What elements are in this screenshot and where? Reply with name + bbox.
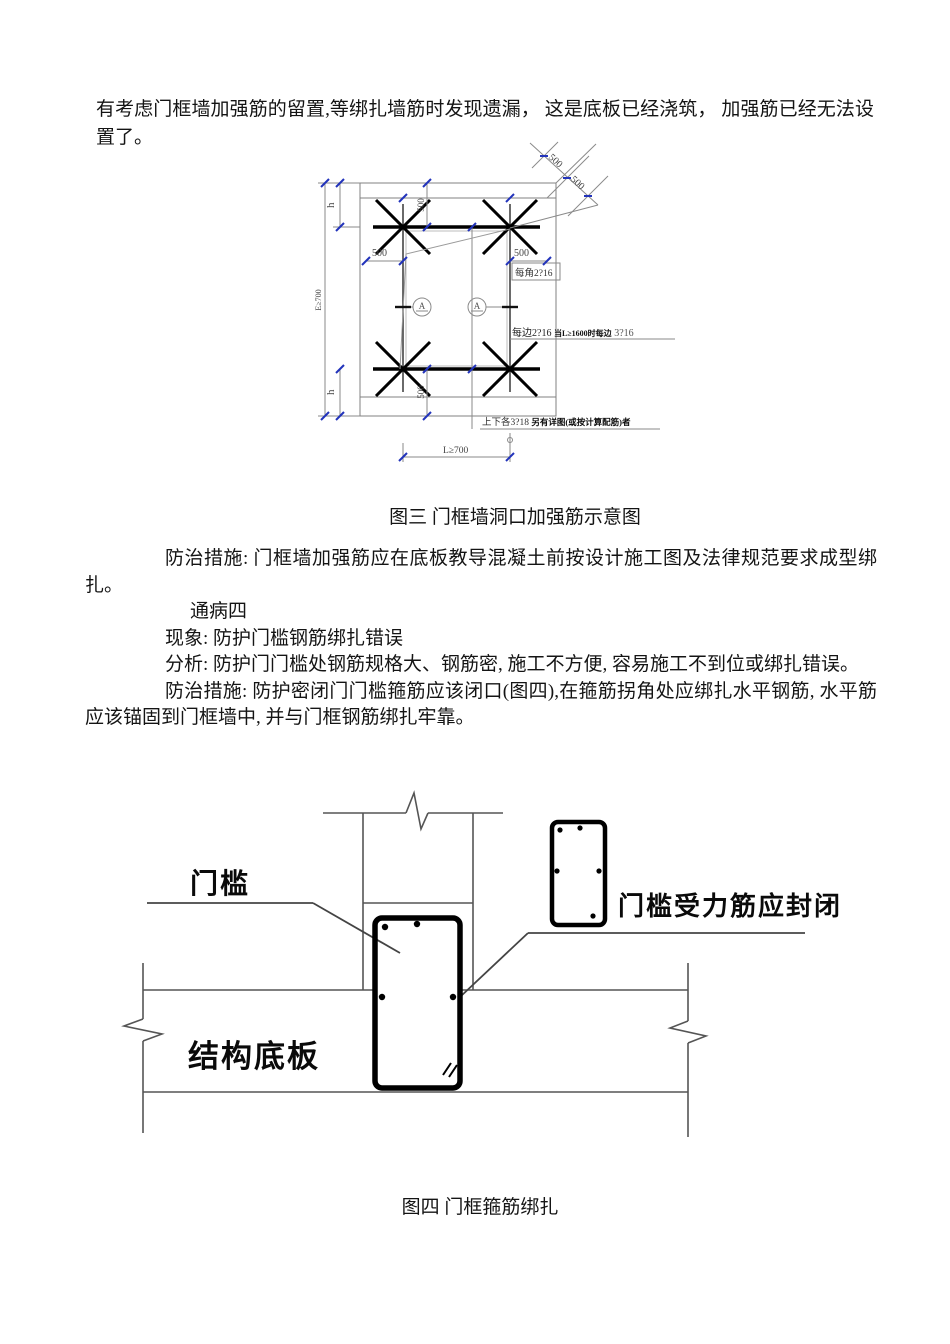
figure3-diagram: h h E≥700 500 500 500 500 500 500 每角2?16…: [300, 140, 740, 485]
dim-500-diag2-label: 500: [568, 174, 587, 192]
sill-label: 门槛: [190, 868, 250, 900]
side-rebar-label-b: 当L≥1600时每边: [554, 328, 613, 338]
slab-label: 结构底板: [188, 1039, 320, 1074]
figure4-svg: 门槛 门槛受力筋应封闭 结构底板: [110, 775, 900, 1150]
dim-h-top-label: h: [325, 202, 337, 208]
dim-500-top-label: 500: [416, 198, 426, 212]
paragraph-analysis: 分析: 防护门门槛处钢筋规格大、钢筋密, 施工不方便, 容易施工不到位或绑扎错误…: [85, 652, 877, 679]
closed-note-label: 门槛受力筋应封闭: [618, 891, 842, 921]
dimension-ticks: [321, 156, 592, 461]
side-rebar-label: 每边2?16 当L≥1600时每边 3?16: [512, 326, 634, 339]
paragraph-measures2: 防治措施: 防护密闭门门槛箍筋应该闭口(图四),在箍筋拐角处应绑扎水平钢筋, 水…: [85, 679, 877, 732]
figure4-diagram: 门槛 门槛受力筋应封闭 结构底板: [110, 775, 900, 1150]
dim-height-label: E≥700: [314, 289, 323, 310]
dim-500-bottom-label: 500: [416, 385, 426, 399]
text-block-measures: 防治措施: 门框墙加强筋应在底板教导混凝土前按设计施工图及法律规范要求成型绑扎。…: [85, 546, 877, 732]
dim-h-bottom-label: h: [325, 389, 337, 395]
bottom-note-label: 上下各3?18 另有详图(或按计算配筋)者: [482, 416, 631, 428]
corner-rebar-label: 每角2?16: [515, 267, 553, 279]
figure3-caption: 图三 门框墙洞口加强筋示意图: [80, 502, 950, 529]
bottom-note-a: 上下各3?18: [482, 416, 529, 428]
paragraph-phenomenon: 现象: 防护门槛钢筋绑扎错误: [85, 626, 877, 653]
bottom-note-b: 另有详图(或按计算配筋)者: [531, 417, 631, 427]
dim-width-label: L≥700: [443, 446, 469, 456]
sill-stirrup: [375, 918, 460, 1088]
figure3-svg: h h E≥700 500 500 500 500 500 500 每角2?16…: [300, 140, 740, 485]
section-mark-a2: A: [474, 301, 481, 311]
dim-500-diag1-label: 500: [546, 152, 565, 170]
side-rebar-label-c: 3?16: [614, 328, 633, 339]
dimension-lines: [318, 142, 675, 462]
document-page: { "document": { "para1": "有考虑门框墙加强筋的留置,等…: [0, 0, 950, 1344]
section-mark-a1: A: [419, 301, 426, 311]
paragraph-disease4: 通病四: [85, 599, 877, 626]
dim-500-right-label: 500: [514, 248, 529, 259]
wall-lines: [323, 793, 503, 990]
paragraph-measures1: 防治措施: 门框墙加强筋应在底板教导混凝土前按设计施工图及法律规范要求成型绑扎。: [85, 546, 877, 599]
closed-stirrup: [552, 822, 605, 925]
figure4-caption: 图四 门框箍筋绑扎: [80, 1192, 880, 1219]
side-rebar-label-a: 每边2?16: [512, 326, 551, 339]
dim-500-left-label: 500: [372, 248, 387, 259]
